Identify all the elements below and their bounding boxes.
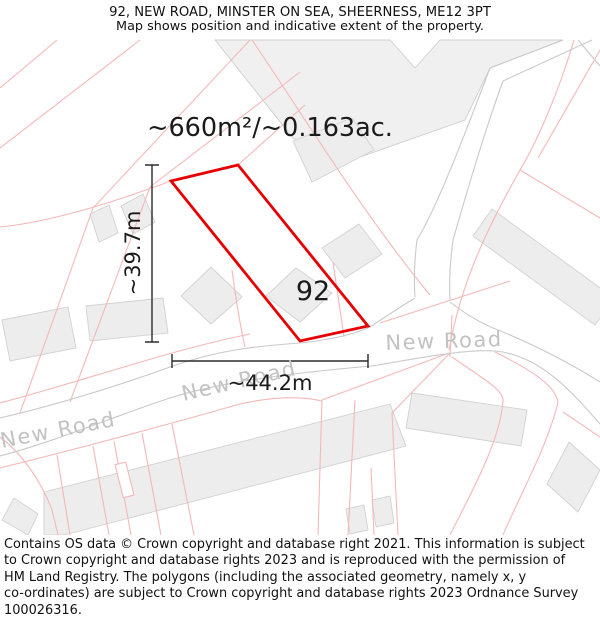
road-label-3: New Road — [385, 327, 503, 355]
map-canvas: New Road New Road New Road ~660m²/~0.163… — [0, 38, 600, 535]
height-dimension-label: ~39.7m — [121, 211, 145, 296]
plot-top — [215, 40, 563, 162]
footer-line: Contains OS data © Crown copyright and d… — [4, 537, 596, 553]
map-header: 92, NEW ROAD, MINSTER ON SEA, SHEERNESS,… — [0, 0, 600, 34]
building — [322, 224, 382, 278]
page-subtitle: Map shows position and indicative extent… — [0, 20, 600, 34]
building — [372, 496, 394, 527]
building — [473, 209, 600, 325]
building — [90, 205, 118, 242]
building — [2, 498, 38, 535]
footer-line: HM Land Registry. The polygons (includin… — [4, 570, 596, 586]
building — [406, 393, 527, 446]
building — [2, 307, 76, 361]
footer-line: 100026316. — [4, 603, 596, 619]
building — [86, 298, 168, 341]
building — [547, 442, 600, 512]
footer-line: to Crown copyright and database rights 2… — [4, 553, 596, 569]
map-svg: New Road New Road New Road ~660m²/~0.163… — [0, 38, 600, 535]
width-dimension-label: ~44.2m — [228, 371, 313, 395]
plot-number-label: 92 — [296, 276, 330, 307]
area-label: ~660m²/~0.163ac. — [147, 113, 393, 143]
page-title: 92, NEW ROAD, MINSTER ON SEA, SHEERNESS,… — [0, 5, 600, 20]
footer-line: co-ordinates) are subject to Crown copyr… — [4, 586, 596, 602]
footer-copyright: Contains OS data © Crown copyright and d… — [4, 537, 596, 619]
